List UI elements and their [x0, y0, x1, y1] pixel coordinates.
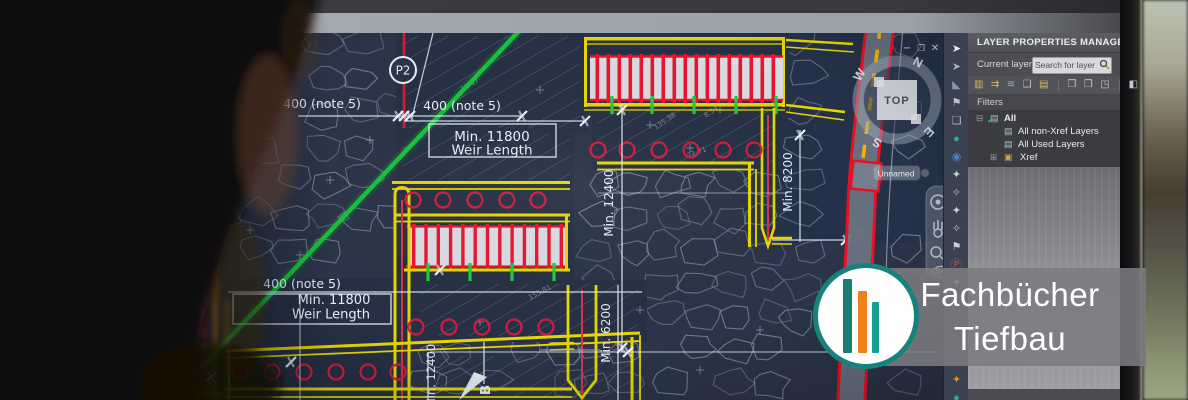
- branding-line1: Fachbücher: [890, 272, 1130, 317]
- osnap-star-icon[interactable]: ✦: [944, 168, 969, 182]
- orange-tool-icon[interactable]: ✦: [944, 373, 969, 387]
- teal-tool-icon[interactable]: ●: [944, 391, 969, 400]
- layers-icon[interactable]: ❏: [944, 114, 969, 128]
- panel-title[interactable]: LAYER PROPERTIES MANAGER: [968, 33, 1120, 53]
- new-layer-icon[interactable]: ❏: [1023, 76, 1032, 94]
- globe-icon[interactable]: ◉: [944, 150, 969, 164]
- select-cursor-icon[interactable]: ➤: [944, 42, 969, 56]
- lasso-cursor-icon[interactable]: ➤: [944, 60, 969, 74]
- collapse-icon[interactable]: ⊟: [976, 112, 983, 125]
- search-input[interactable]: [1035, 58, 1095, 71]
- panel-toolbar: ▥ ⇉ ≋ ❏ ▤ ❐ ❐ ◳ ◧: [968, 76, 1120, 95]
- toolbar-separator: [1058, 79, 1059, 91]
- layer-filter-tree: ⊟ ▤ ✓ All ▤ All non-Xref Layers ▤ All Us…: [968, 110, 1120, 167]
- osnap-star-icon[interactable]: ✧: [944, 186, 969, 200]
- search-icon[interactable]: [1099, 59, 1110, 70]
- osnap-star-icon[interactable]: ✦: [944, 204, 969, 218]
- monitor-top-edge-highlight: [180, 13, 1122, 33]
- toolbar-separator: [1119, 79, 1120, 91]
- tree-item-all[interactable]: ⊟ ▤ ✓ All: [968, 112, 1120, 125]
- tree-item-non-xref[interactable]: ▤ All non-Xref Layers: [968, 125, 1120, 138]
- expand-icon[interactable]: ⊞: [990, 151, 997, 164]
- new-group-filter-icon[interactable]: ⇉: [991, 76, 999, 94]
- blurred-room-background: [1143, 0, 1188, 400]
- new-property-filter-icon[interactable]: ▥: [974, 76, 983, 94]
- tree-item-xref[interactable]: ⊞ ▣ Xref: [968, 151, 1120, 164]
- branding-line2: Tiefbau: [890, 317, 1130, 361]
- filters-label: Filters: [968, 95, 1120, 110]
- corner-select-icon[interactable]: ◣: [944, 78, 969, 92]
- flag-icon[interactable]: ⚑: [944, 240, 969, 254]
- delete-layer-icon[interactable]: ▤: [1039, 76, 1048, 94]
- sphere-icon[interactable]: ●: [944, 132, 969, 146]
- flag-icon[interactable]: ⚑: [944, 96, 969, 110]
- screenshot-root: { "overlay": { "line1": "Fachbücher", "l…: [0, 0, 1188, 400]
- layers-icon: ▤: [1004, 125, 1013, 138]
- tree-item-used[interactable]: ▤ All Used Layers: [968, 138, 1120, 151]
- settings-icon[interactable]: ◳: [1100, 76, 1109, 94]
- logo-bar-teal-tall: [843, 279, 852, 353]
- layers-icon: ▤: [1004, 138, 1013, 151]
- logo-bar-teal-short: [872, 302, 879, 353]
- set-current-icon[interactable]: ❐: [1067, 76, 1076, 94]
- brand-logo-badge: [813, 263, 919, 369]
- layer-search-box[interactable]: [1032, 57, 1112, 74]
- monitor-top-bezel: [180, 0, 1122, 13]
- left-shade: [180, 33, 330, 400]
- logo-bar-orange: [858, 291, 867, 353]
- refresh-icon[interactable]: ❐: [1084, 76, 1093, 94]
- folder-icon: ▣: [1004, 151, 1013, 164]
- isolate-icon[interactable]: ◧: [1129, 76, 1138, 94]
- osnap-star-icon[interactable]: ✧: [944, 222, 969, 236]
- branding-text: Fachbücher Tiefbau: [890, 272, 1130, 361]
- layer-states-icon[interactable]: ≋: [1007, 76, 1015, 94]
- current-layer-label: Current layer:: [977, 59, 1035, 70]
